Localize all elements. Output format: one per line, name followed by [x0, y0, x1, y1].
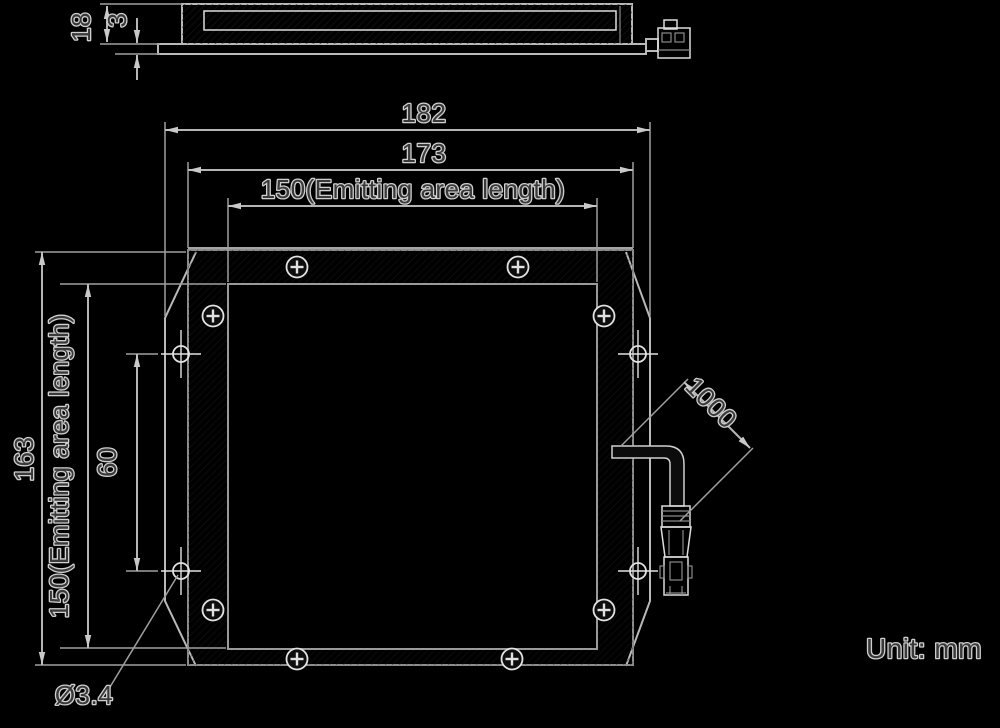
dim-label-emitting-width: 150(Emitting area length) — [261, 174, 565, 204]
side-view-cable-stub — [646, 39, 658, 51]
emitting-area — [228, 284, 597, 649]
leader-line-hole-diameter — [110, 575, 178, 687]
screw-icon-top-right — [508, 257, 529, 278]
drawing-canvas: 18 3 — [0, 0, 1000, 728]
side-view-panel-texture — [182, 4, 632, 44]
dim-label-hole-diameter: Ø3.4 — [55, 680, 113, 710]
screw-icon-top-left — [287, 257, 308, 278]
dim-label-cable-length: 1000 — [680, 371, 744, 435]
ext-line-1000-b — [680, 448, 753, 521]
dim-label-overall-height: 163 — [9, 437, 39, 482]
screw-icon-right-upper — [594, 306, 615, 327]
side-view-connector — [658, 20, 690, 58]
screw-icon-right-lower — [594, 600, 615, 621]
screw-icon-bottom-right — [502, 649, 523, 670]
screw-icon-bottom-left — [287, 649, 308, 670]
connector — [660, 506, 692, 595]
screw-icon-left-lower — [203, 600, 224, 621]
front-view — [161, 248, 692, 670]
screw-icon-left-upper — [203, 306, 224, 327]
dim-label-frame-width: 173 — [402, 138, 447, 168]
technical-drawing: 18 3 — [0, 0, 1000, 728]
side-profile-view: 18 3 — [66, 4, 690, 80]
dim-label-overall-width: 182 — [402, 98, 447, 128]
dim-label-thickness-18: 18 — [66, 12, 96, 42]
side-view-flange-plate — [158, 44, 646, 54]
dim-label-emitting-height: 150(Emitting area length) — [44, 314, 74, 618]
dim-label-plate-3: 3 — [102, 13, 132, 28]
unit-note: Unit: mm — [866, 633, 982, 664]
dim-label-hole-spacing: 60 — [92, 447, 122, 477]
